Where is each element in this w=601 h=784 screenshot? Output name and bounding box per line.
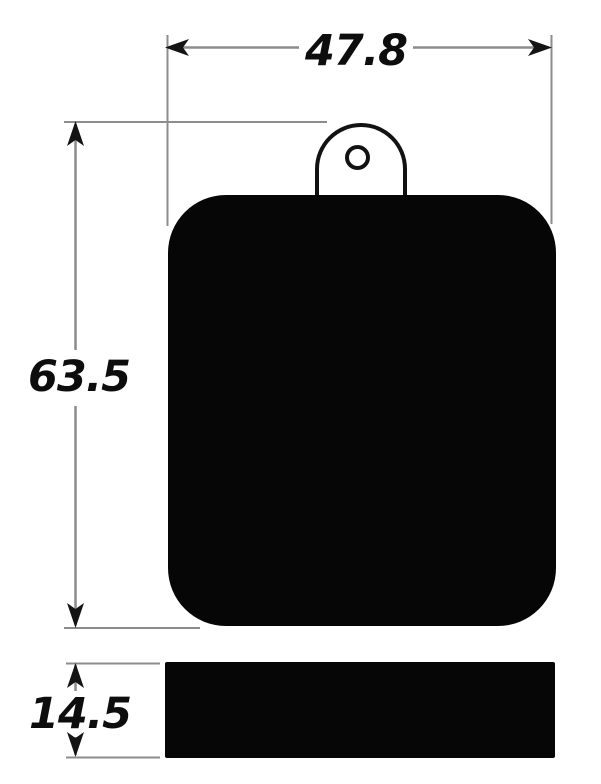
mounting-tab-hole [345, 145, 370, 170]
technical-drawing-canvas: 47.8 63.5 14.5 [0, 0, 601, 784]
height-dimension-label: 63.5 [20, 356, 138, 399]
width-dimension-label: 47.8 [296, 30, 416, 73]
thickness-dimension-label: 14.5 [20, 693, 140, 736]
pad-front-view [168, 195, 556, 626]
pad-side-view [165, 662, 555, 758]
